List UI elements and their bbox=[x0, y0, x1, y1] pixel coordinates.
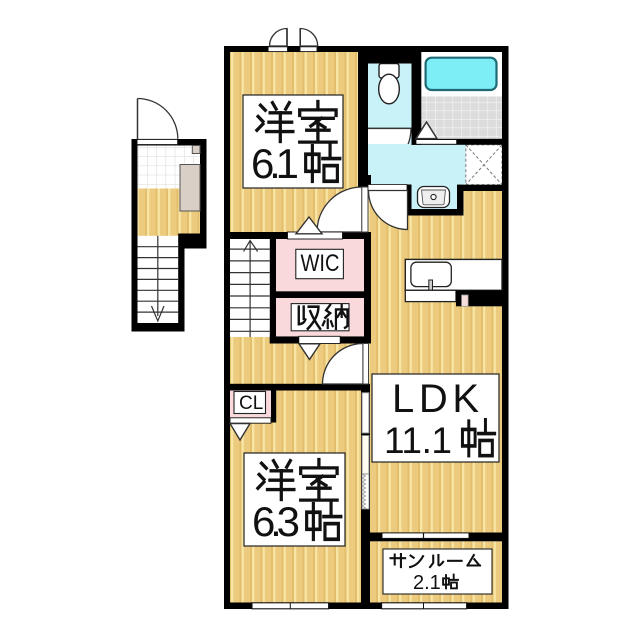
svg-text:WIC: WIC bbox=[301, 250, 340, 277]
svg-text:11.1: 11.1 bbox=[384, 420, 452, 461]
svg-text:CL: CL bbox=[239, 393, 263, 414]
svg-text:6.3: 6.3 bbox=[252, 498, 300, 545]
svg-text:LDK: LDK bbox=[392, 377, 479, 421]
svg-text:2.1: 2.1 bbox=[413, 572, 441, 594]
svg-text:6.1: 6.1 bbox=[251, 140, 299, 187]
